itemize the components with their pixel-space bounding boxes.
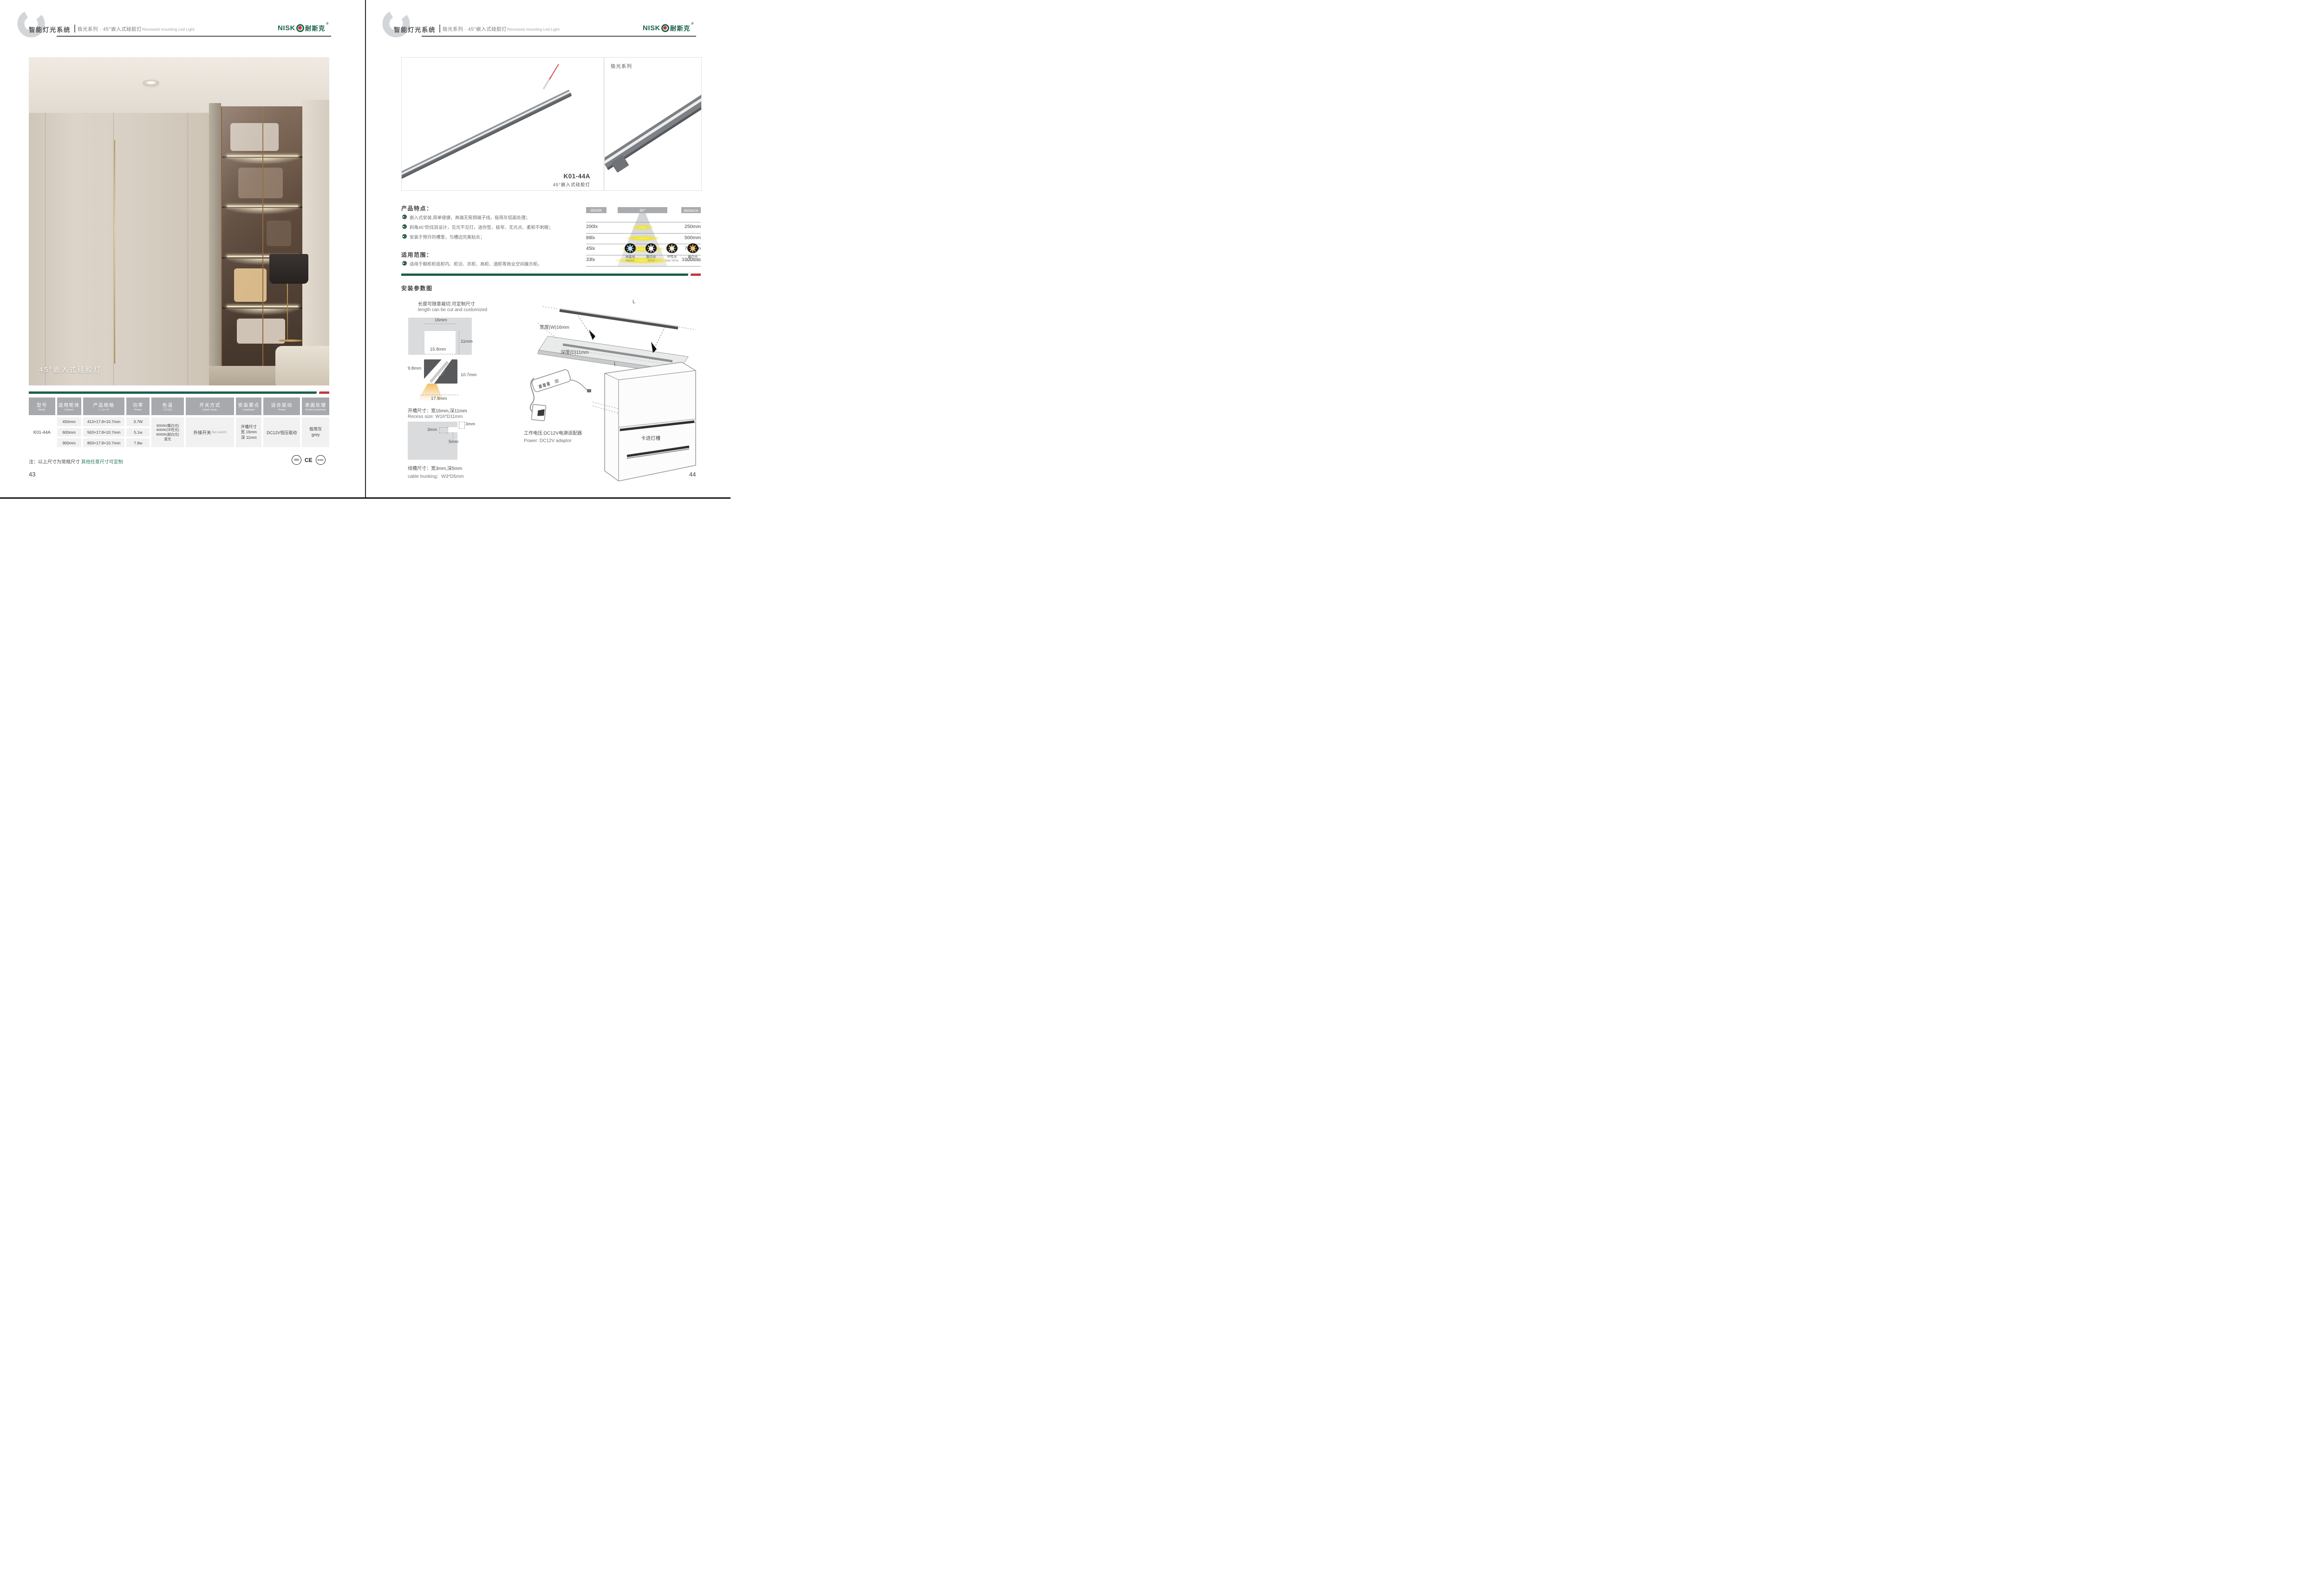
col-cabinet: 适用柜体 Cabinet — [57, 397, 81, 415]
led-strip-glow — [227, 206, 299, 207]
cell-model: K01-44A — [29, 417, 55, 447]
board-width-label: 宽度(W)16mm — [540, 323, 569, 330]
cell-cct: 3000K(暖白光) 4000K(中性光) 6000K(超白光) 蓝光 — [151, 417, 183, 447]
header-series: 极光系列 · 45°嵌入式硅胶灯 Recessed mounting Led L… — [78, 26, 195, 33]
cct-swatches: 冰蓝光 Basket 超白光 White 中性光 Cool Wh — [620, 243, 703, 262]
power-adaptor-illustration — [524, 366, 594, 424]
logo-cjk: 耐斯克 — [305, 23, 326, 33]
cell-cabinet-sizes: 450mm 600mm 900mm — [57, 417, 81, 447]
logo-registered-mark: ® — [691, 22, 693, 26]
power-note-cn: 工作电压:DC12V电源适配器 — [524, 429, 582, 436]
gold-handle-strip — [114, 140, 115, 364]
swatch-white: 超白光 White — [641, 243, 661, 262]
floor-lamp-pole — [287, 284, 288, 339]
cell-specs: 413×17.8×10.7mm 563×17.8×10.7mm 863×17.8… — [83, 417, 125, 447]
product-model: K01-44A — [563, 173, 590, 180]
cell-installation: 开槽尺寸 宽 16mm 深 11mm — [236, 417, 261, 447]
section-separator — [29, 390, 329, 394]
product-photo-main: K01-44A 45°嵌入式硅胶灯 — [401, 57, 604, 191]
header-divider — [74, 25, 75, 33]
feature-bullet-icon — [402, 234, 407, 239]
cct-orb-icon — [687, 243, 698, 253]
wardrobe-doors — [29, 113, 209, 385]
page-bottom-edge — [0, 497, 731, 499]
application-item: 适用于橱柜柜底柜内、柜沿、衣柜、高柜、酒柜等商业空间展示柜。 — [402, 261, 542, 267]
cct-orb-icon — [625, 243, 636, 253]
application-bullet-icon — [402, 261, 407, 266]
dim-3mm-top: 3mm — [465, 422, 475, 427]
separator-green-bar — [401, 274, 688, 276]
beam-spot — [625, 235, 660, 241]
folded-clothes — [238, 168, 283, 198]
cell-switch: 外接开关 /No switch — [186, 417, 235, 447]
install-title: 安装参数图 — [401, 284, 433, 292]
board-depth-label: 深度(D)11mm — [561, 348, 589, 355]
storage-box — [234, 268, 267, 302]
separator-green-bar — [29, 391, 317, 394]
cell-driver: DC12V恒压驱动 — [263, 417, 300, 447]
brand-logo: NISK 耐斯克 ® — [643, 23, 694, 33]
spec-table-body: K01-44A 450mm 600mm 900mm 413×17.8×10.7m… — [29, 417, 329, 447]
dim-3mm-side: 3mm — [427, 427, 437, 432]
power-note-en: Power: DC12V adaptor — [524, 438, 572, 443]
col-model: 型号 Model — [29, 397, 55, 415]
col-surface: 表面处理 Surface treatment — [302, 397, 329, 415]
feature-bullet-icon — [402, 224, 407, 229]
product-photo-profile: 极光系列 — [604, 57, 702, 191]
right-pillar — [302, 100, 329, 385]
cct-orb-icon — [666, 243, 678, 253]
cell-powers: 3.7W 5.1w 7.8w — [126, 417, 150, 447]
swatch-ice-blue: 冰蓝光 Basket — [620, 243, 640, 262]
page-number-left: 43 — [29, 471, 35, 478]
header-divider — [439, 25, 440, 33]
corner-shadow — [209, 103, 221, 385]
trunking-size-cn: 线槽尺寸：宽3mm,深5mm — [408, 464, 462, 471]
trunking-notch — [448, 427, 457, 432]
logo-registered-mark: ® — [326, 22, 328, 26]
cell-surface: 极简灰 grey — [302, 417, 329, 447]
ce-cert-icon: CE — [305, 457, 313, 463]
table-note: 注：以上尺寸为常规尺寸 其他任意尺寸可定制 — [29, 458, 123, 465]
page-number-right: 44 — [689, 471, 696, 478]
swatch-cool-white: 中性光 Cool White — [662, 243, 682, 262]
series-subtitle-en: Recessed mounting Led Light — [507, 27, 559, 32]
dim-10-7mm: 10.7mm — [461, 372, 476, 378]
recess-size-en: Recess size: W16*D11mm — [408, 414, 463, 419]
spec-table: 型号 Model 适用柜体 Cabinet 产品规格 L x D x H 功率 … — [29, 397, 329, 447]
handbag — [267, 221, 291, 246]
profile-cross-section — [415, 356, 484, 402]
feature-bullet-icon — [402, 215, 407, 219]
logo-latin: NISK — [278, 24, 295, 32]
page-title: 智能灯光系统 — [394, 25, 436, 34]
logo-latin: NISK — [643, 24, 660, 32]
floor-lamp-base — [279, 339, 303, 342]
logo-o-icon — [296, 24, 304, 32]
col-switch: 开关方式 Switch mode — [186, 397, 235, 415]
header-rule — [422, 36, 696, 37]
brand-logo: NISK 耐斯克 ® — [278, 23, 329, 33]
beam-spot — [632, 225, 654, 230]
board-length-label: L — [633, 299, 635, 305]
feature-item: 斜角45°防炫目设计，见光不见灯，迷你型、极窄、无光点、柔和不刺眼； — [402, 224, 553, 230]
dist-angle-box: 90° — [618, 207, 667, 213]
section-separator — [401, 272, 701, 276]
pillow — [230, 123, 279, 151]
display-cabinet — [221, 106, 304, 385]
dim-9-8mm: 9.8mm — [408, 366, 421, 371]
swatch-warm-white: 暖白光 Warm White — [683, 243, 703, 262]
col-driver: 适合驱动 Power — [263, 397, 300, 415]
floor-lamp-shade — [269, 254, 308, 284]
dist-cct-box: 6500K — [586, 207, 607, 213]
catalog-spread: 智能灯光系统 极光系列 · 45°嵌入式硅胶灯 Recessed mountin… — [0, 0, 731, 499]
photo-caption: 45°嵌入式硅胶灯 — [39, 365, 102, 374]
page-gutter-line — [365, 0, 366, 499]
dim-5mm: 5mm — [449, 439, 458, 444]
feature-item: 安装于预开的槽里，与槽边完美贴合； — [402, 234, 485, 240]
spec-table-header: 型号 Model 适用柜体 Cabinet 产品规格 L x D x H 功率 … — [29, 397, 329, 415]
led-strip-glow — [227, 156, 299, 156]
series-label: 极光系列 — [611, 63, 632, 70]
dim-11mm: 11mm — [461, 339, 473, 344]
note-highlight: 其他任意尺寸可定制 — [81, 460, 123, 465]
glass-door-frame — [262, 106, 263, 385]
cut-note-en: length can be cut and customized — [418, 307, 487, 313]
clip-label: 卡进灯槽 — [641, 435, 660, 442]
series-title: 极光系列 · 45°嵌入式硅胶灯 — [78, 26, 142, 33]
col-cct: 色温 CCT(K) — [151, 397, 183, 415]
cabinet-illustration — [591, 358, 704, 483]
application-title: 适用范围： — [401, 251, 433, 259]
logo-cjk: 耐斯克 — [670, 23, 691, 33]
ccc-cert-icon: CCC — [292, 455, 301, 465]
recess-size-cn: 开槽尺寸：宽16mm,深11mm — [408, 407, 467, 414]
product-name: 45°嵌入式硅胶灯 — [553, 181, 590, 188]
rohs-cert-icon: RoHS — [316, 455, 326, 465]
col-installation: 安装要点 Installation — [236, 397, 261, 415]
certifications: CCC CE RoHS — [292, 455, 326, 465]
led-bar-illustration — [402, 58, 603, 190]
page-title: 智能灯光系统 — [29, 25, 71, 34]
col-spec: 产品规格 L x D x H — [83, 397, 125, 415]
cut-note-cn: 长度可随意裁切,可定制尺寸 — [418, 300, 475, 307]
logo-o-icon — [661, 24, 669, 32]
series-title: 极光系列 · 45°嵌入式硅胶灯 — [443, 26, 507, 33]
dim-15-8mm: 15.8mm — [430, 347, 446, 352]
col-power: 功率 Power — [126, 397, 150, 415]
header-rule — [57, 36, 331, 37]
profile-illustration — [605, 58, 701, 190]
separator-red-tab — [319, 391, 329, 394]
dist-distance-box: distance — [681, 207, 701, 213]
dim-16mm: 16mm — [434, 318, 448, 323]
lifestyle-photo: 45°嵌入式硅胶灯 — [29, 57, 329, 385]
separator-red-tab — [691, 274, 701, 276]
folded-towels — [237, 319, 286, 344]
trunking-size-en: cable trunking：W3*D5mm — [408, 472, 464, 479]
dim-17-8mm: 17.8mm — [431, 396, 447, 401]
features-title: 产品特点： — [401, 204, 433, 212]
bed-corner — [275, 346, 329, 385]
series-subtitle-en: Recessed mounting Led Light — [142, 27, 194, 32]
header-series: 极光系列 · 45°嵌入式硅胶灯 Recessed mounting Led L… — [443, 26, 560, 33]
feature-item: 嵌入式安装,简单便捷，高端无氧铜端子线，极简灰铝面处理； — [402, 214, 530, 221]
cct-orb-icon — [646, 243, 657, 253]
